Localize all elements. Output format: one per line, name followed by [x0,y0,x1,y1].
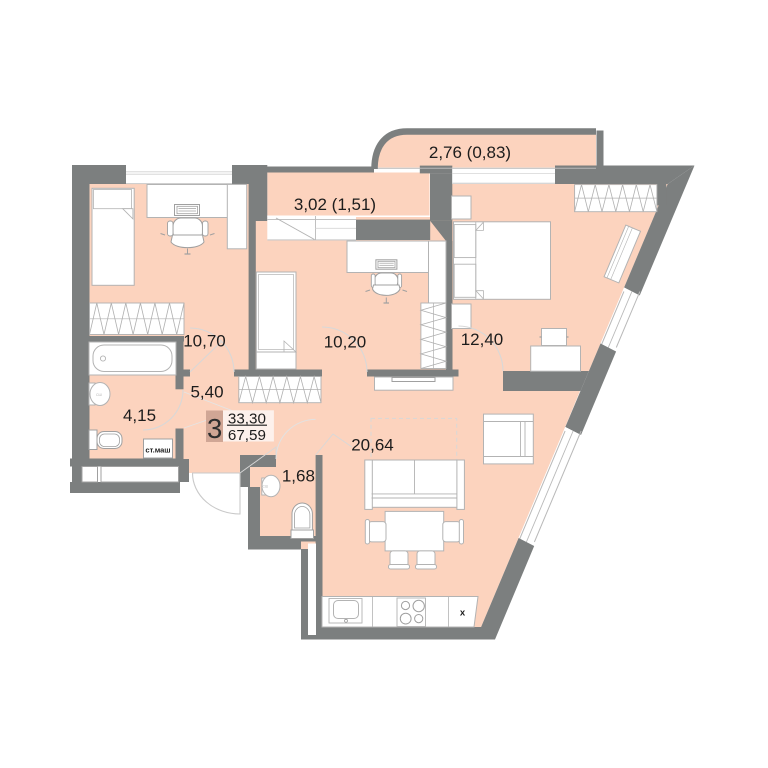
svg-text:12,40: 12,40 [461,330,504,349]
svg-text:ст.маш: ст.маш [145,445,170,454]
svg-text:CШ: CШ [263,485,269,489]
svg-text:2,76 (0,83): 2,76 (0,83) [429,143,511,162]
svg-text:4,15: 4,15 [123,406,156,425]
svg-text:5,40: 5,40 [190,382,223,401]
svg-text:x: x [460,608,466,619]
svg-text:10,70: 10,70 [183,332,226,351]
svg-text:10,20: 10,20 [324,333,367,352]
svg-text:67,59: 67,59 [228,427,266,444]
svg-text:1,68: 1,68 [282,467,315,486]
svg-text:CШ: CШ [96,393,102,397]
svg-text:20,64: 20,64 [351,436,394,455]
svg-text:3,02 (1,51): 3,02 (1,51) [294,195,376,214]
svg-text:3: 3 [207,413,222,444]
